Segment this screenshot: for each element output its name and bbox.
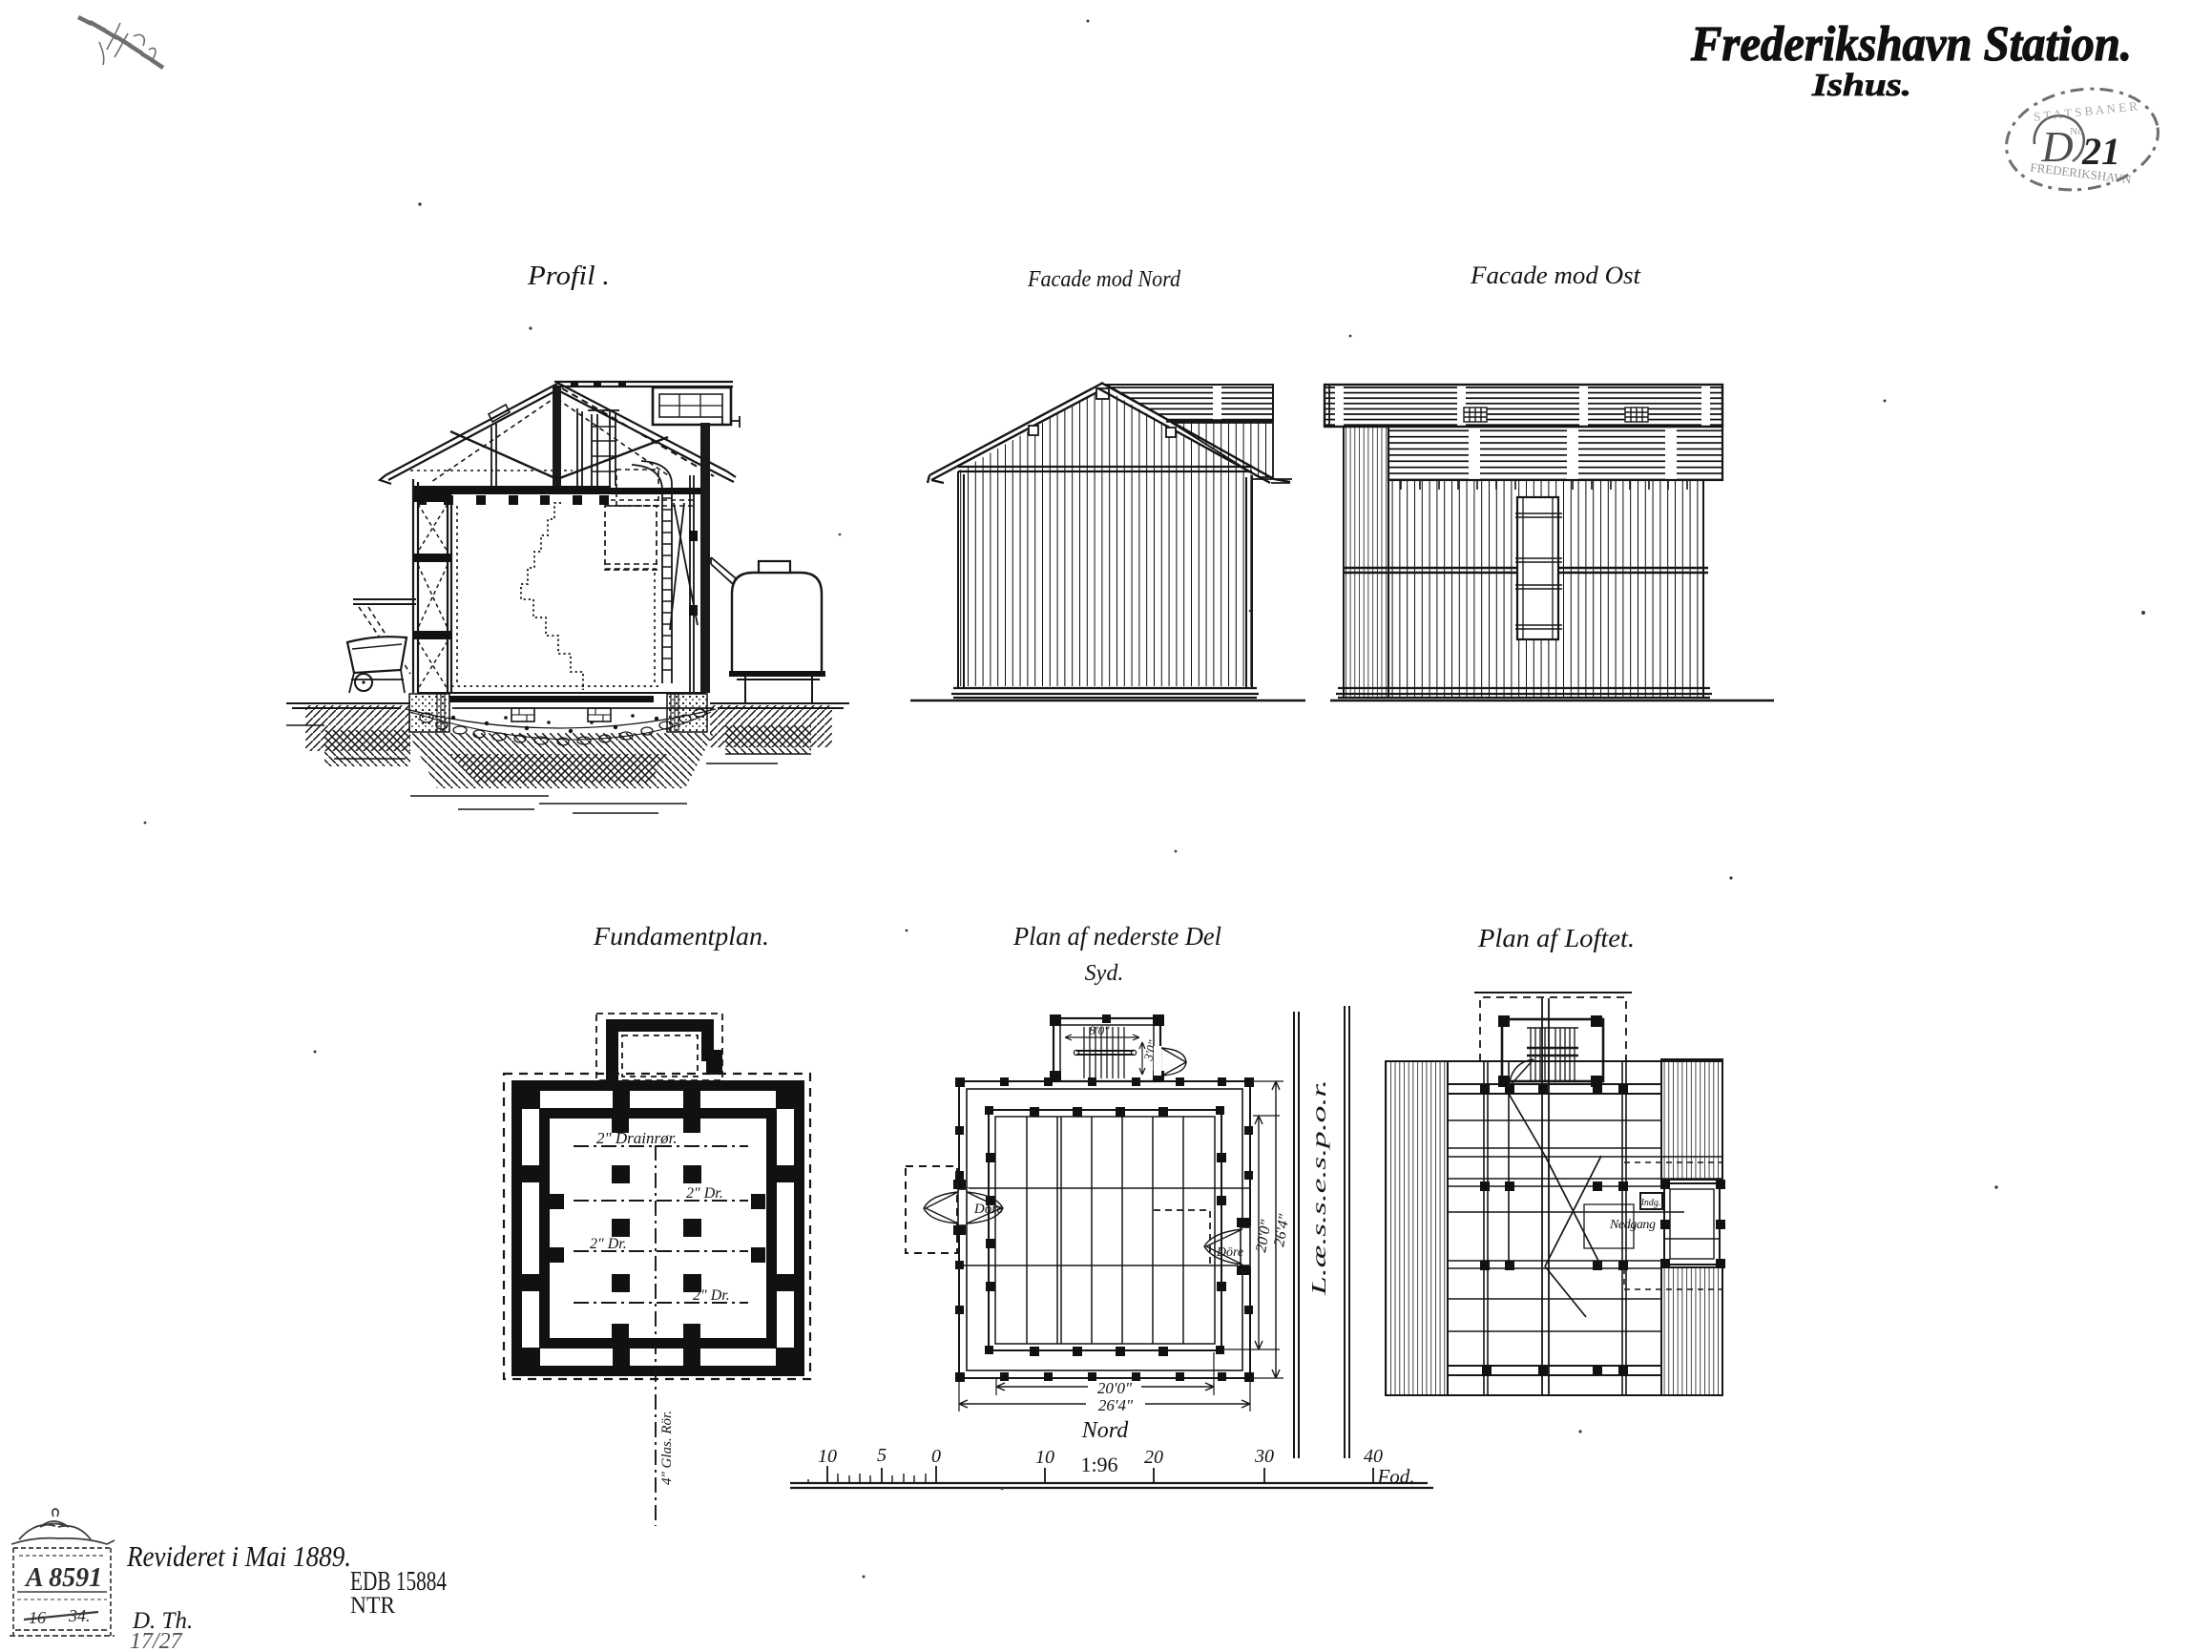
svg-text:L.æ.s.s.e.s.p.o.r.: L.æ.s.s.e.s.p.o.r. <box>1307 1079 1330 1297</box>
svg-text:2" Dr.: 2" Dr. <box>590 1236 627 1252</box>
svg-text:5: 5 <box>877 1445 887 1466</box>
svg-text:Fundamentplan.: Fundamentplan. <box>593 922 769 951</box>
svg-text:Döre: Döre <box>973 1202 1004 1217</box>
svg-text:0: 0 <box>931 1446 941 1467</box>
svg-text:Plan af nederste Del: Plan af nederste Del <box>1012 922 1221 951</box>
svg-text:10: 10 <box>1035 1447 1054 1468</box>
svg-text:Syd.: Syd. <box>1085 961 1124 986</box>
svg-text:10: 10 <box>818 1446 837 1467</box>
svg-text:17/27: 17/27 <box>130 1629 183 1652</box>
svg-text:2" Dr.: 2" Dr. <box>693 1287 730 1304</box>
svg-text:40: 40 <box>1364 1446 1383 1467</box>
svg-text:Döre: Döre <box>1216 1245 1243 1260</box>
svg-text:16: 16 <box>29 1608 46 1627</box>
svg-text:Ishus.: Ishus. <box>1811 68 1911 103</box>
svg-text:A 8591: A 8591 <box>24 1563 102 1593</box>
svg-text:2" Drainrør.: 2" Drainrør. <box>596 1129 678 1147</box>
svg-text:Frederikshavn Station.: Frederikshavn Station. <box>1690 17 2132 72</box>
svg-text:Indg.: Indg. <box>1640 1198 1661 1208</box>
svg-text:Plan af Loftet.: Plan af Loftet. <box>1477 924 1635 952</box>
svg-text:Nord: Nord <box>1081 1418 1129 1443</box>
svg-text:NTR: NTR <box>350 1593 395 1619</box>
svg-text:20'0": 20'0" <box>1097 1379 1133 1397</box>
svg-text:26'4": 26'4" <box>1098 1396 1134 1414</box>
svg-text:No: No <box>2070 126 2083 137</box>
svg-text:Nedgang: Nedgang <box>1609 1218 1656 1232</box>
svg-text:Fod.: Fod. <box>1376 1465 1414 1488</box>
svg-text:34.: 34. <box>68 1606 91 1625</box>
svg-text:8'0": 8'0" <box>1089 1023 1110 1037</box>
svg-text:Facade mod Ost: Facade mod Ost <box>1470 261 1641 289</box>
svg-text:Profil .: Profil . <box>527 261 610 291</box>
svg-text:Revideret i Mai 1889.: Revideret i Mai 1889. <box>126 1539 351 1573</box>
svg-text:2" Dr.: 2" Dr. <box>686 1185 723 1202</box>
svg-text:Facade mod Nord: Facade mod Nord <box>1027 267 1181 292</box>
svg-text:1:96: 1:96 <box>1080 1453 1117 1476</box>
svg-text:4" Glas. Rör.: 4" Glas. Rör. <box>659 1411 675 1485</box>
svg-text:20: 20 <box>1144 1447 1163 1468</box>
svg-text:30: 30 <box>1254 1446 1274 1467</box>
